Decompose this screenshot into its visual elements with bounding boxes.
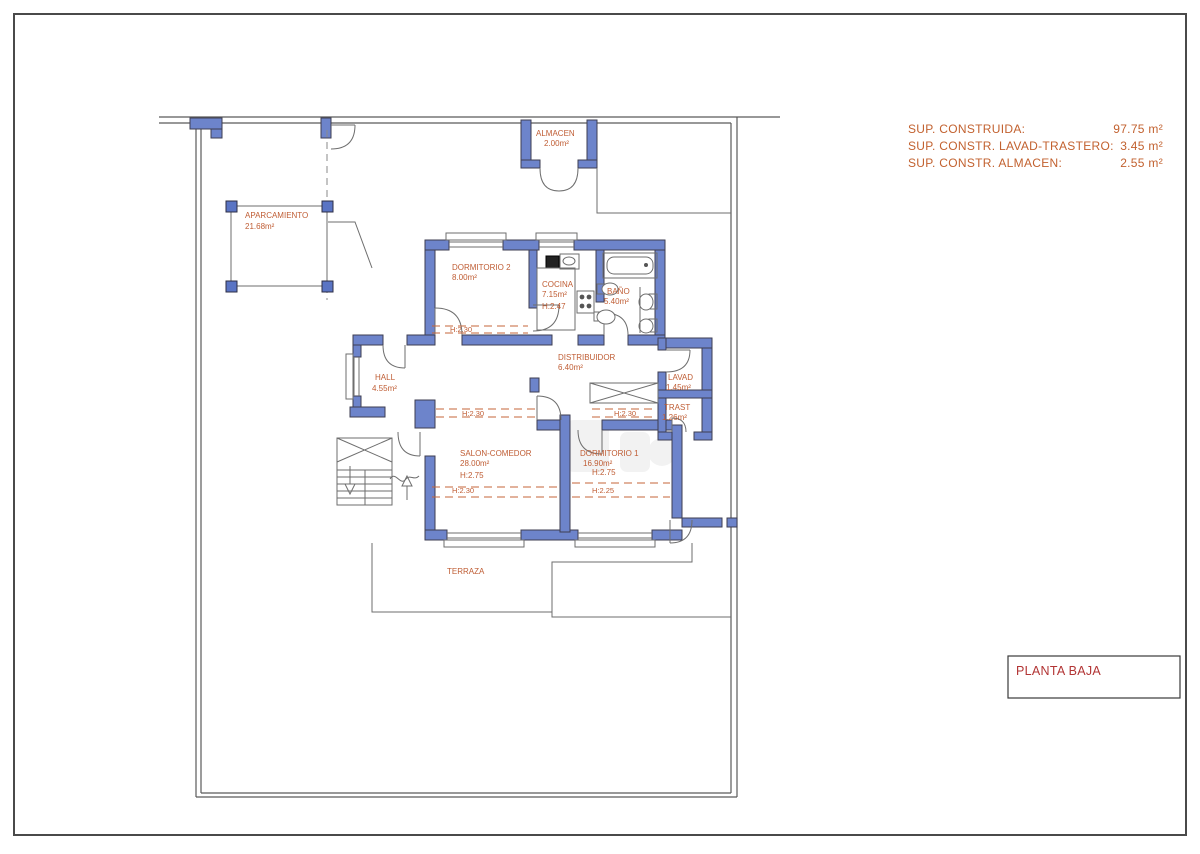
- room-area: 7.15m²: [542, 290, 567, 299]
- level-label: H:2.30: [450, 325, 472, 334]
- room-area: 5.40m²: [604, 297, 629, 306]
- almacen-door-arc: [559, 168, 578, 191]
- window-sill: [536, 233, 577, 240]
- almacen-shed: ALMACEN 2.00m²: [521, 120, 731, 213]
- room-name: TERRAZA: [447, 567, 485, 576]
- room-name: ALMACEN: [536, 129, 575, 138]
- summary-row-label: SUP. CONSTRUIDA:: [908, 122, 1025, 136]
- room-height: H:2.75: [460, 471, 484, 480]
- room-area: 16.90m²: [583, 459, 613, 468]
- summary-row-label: SUP. CONSTR. ALMACEN:: [908, 156, 1062, 170]
- terrace-outline: [372, 543, 731, 617]
- lavadero-door-arc: [666, 350, 690, 372]
- room-area: 6.40m²: [558, 363, 583, 372]
- carport-pillar: [322, 281, 333, 292]
- carport-pillar: [226, 281, 237, 292]
- room-area: 21.68m²: [245, 222, 275, 231]
- room-name: TRAST: [664, 403, 690, 412]
- gate-door-arc: [331, 125, 355, 149]
- porch-outline: [597, 168, 731, 213]
- floor-plan-drawing: SUP. CONSTRUIDA: 97.75 m² SUP. CONSTR. L…: [0, 0, 1200, 849]
- room-area: 2.00m²: [544, 139, 569, 148]
- summary-row-label: SUP. CONSTR. LAVAD-TRASTERO:: [908, 139, 1114, 153]
- bidet: [639, 319, 653, 333]
- hall-entry-door-arc: [383, 345, 405, 368]
- hob: [577, 291, 594, 313]
- gate-pillar: [190, 118, 222, 129]
- toilet: [639, 294, 653, 310]
- room-name: LAVAD: [668, 373, 693, 382]
- room-name: DISTRIBUIDOR: [558, 353, 616, 362]
- room-area: 8.00m²: [452, 273, 477, 282]
- room-area: 1.45m²: [666, 383, 691, 392]
- level-label: H:2.30: [452, 486, 474, 495]
- carport-pillar: [226, 201, 237, 212]
- title-block: PLANTA BAJA: [1008, 656, 1180, 698]
- walkway-line: [328, 222, 372, 268]
- room-name: SALON-COMEDOR: [460, 449, 532, 458]
- gate-jamb: [321, 118, 331, 138]
- level-label: H:2.30: [462, 409, 484, 418]
- level-label: H:2.25: [592, 486, 614, 495]
- room-area: 28.00m²: [460, 459, 490, 468]
- summary-row-value: 2.55 m²: [1120, 156, 1163, 170]
- summary-row-value: 97.75 m²: [1113, 122, 1163, 136]
- salon-door-arc: [537, 396, 561, 420]
- room-height: H:2.47: [542, 302, 566, 311]
- site-elements: APARCAMIENTO 21.68m²: [190, 118, 372, 300]
- gate-pillar: [211, 129, 222, 138]
- carport-pillar: [322, 201, 333, 212]
- room-name: APARCAMIENTO: [245, 211, 308, 220]
- window-sill: [346, 354, 353, 399]
- window-sill: [446, 233, 506, 240]
- surface-summary: SUP. CONSTRUIDA: 97.75 m² SUP. CONSTR. L…: [908, 122, 1163, 170]
- room-area: 1.26m²: [662, 413, 687, 422]
- room-height: H:2.75: [592, 468, 616, 477]
- plan-title: PLANTA BAJA: [1016, 664, 1101, 678]
- stove: [546, 256, 559, 268]
- stairs-down-arrow: [345, 484, 355, 494]
- window-sill: [444, 540, 524, 547]
- summary-row-value: 3.45 m²: [1120, 139, 1163, 153]
- room-area: 4.55m²: [372, 384, 397, 393]
- stairs: [337, 438, 419, 505]
- room-name: HALL: [375, 373, 396, 382]
- room-name: COCINA: [542, 280, 574, 289]
- level-label: H:2.30: [614, 409, 636, 418]
- room-name: DORMITORIO 2: [452, 263, 511, 272]
- room-name: BAÑO: [607, 287, 630, 296]
- break-line: [390, 476, 419, 481]
- almacen-door-arc: [540, 168, 559, 191]
- room-name: DORMITORIO 1: [580, 449, 639, 458]
- floor-plan-page: SUP. CONSTRUIDA: 97.75 m² SUP. CONSTR. L…: [0, 0, 1200, 849]
- salon-stairs-door-arc: [398, 432, 420, 456]
- window-sill: [575, 540, 655, 547]
